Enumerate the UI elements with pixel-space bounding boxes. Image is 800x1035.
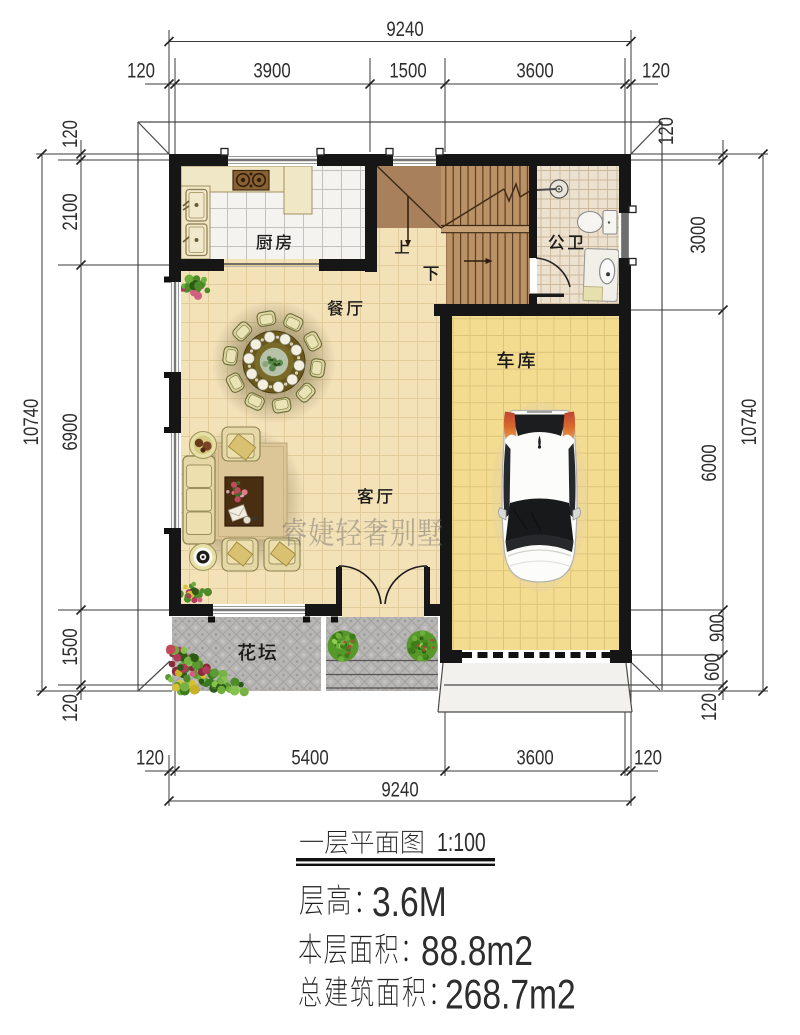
svg-text:120: 120: [136, 747, 164, 770]
svg-text:120: 120: [655, 117, 678, 145]
svg-text:5400: 5400: [291, 747, 328, 770]
svg-text:1500: 1500: [59, 628, 82, 665]
svg-text:3.6M: 3.6M: [372, 880, 447, 926]
svg-text:600: 600: [701, 653, 724, 681]
svg-text:120: 120: [642, 60, 670, 83]
svg-text:2100: 2100: [59, 193, 82, 230]
svg-text:1500: 1500: [389, 60, 426, 83]
svg-text:6000: 6000: [698, 444, 721, 481]
svg-text:268.7m2: 268.7m2: [445, 972, 576, 1018]
svg-text:9240: 9240: [386, 18, 423, 41]
svg-text:1:100: 1:100: [437, 827, 486, 856]
svg-text:10740: 10740: [738, 399, 761, 446]
svg-text:88.8m2: 88.8m2: [421, 929, 533, 975]
svg-text:120: 120: [59, 694, 82, 722]
svg-text:120: 120: [127, 60, 155, 83]
svg-text:3600: 3600: [516, 747, 553, 770]
svg-text:3900: 3900: [253, 60, 290, 83]
svg-text:3600: 3600: [516, 60, 553, 83]
svg-text:120: 120: [698, 693, 721, 721]
svg-text:3000: 3000: [687, 216, 710, 253]
svg-text:9240: 9240: [381, 779, 418, 802]
svg-text:6900: 6900: [59, 413, 82, 450]
svg-text:120: 120: [59, 120, 82, 148]
svg-text:10740: 10740: [20, 399, 43, 446]
svg-text:120: 120: [634, 747, 662, 770]
svg-text:900: 900: [706, 614, 729, 642]
